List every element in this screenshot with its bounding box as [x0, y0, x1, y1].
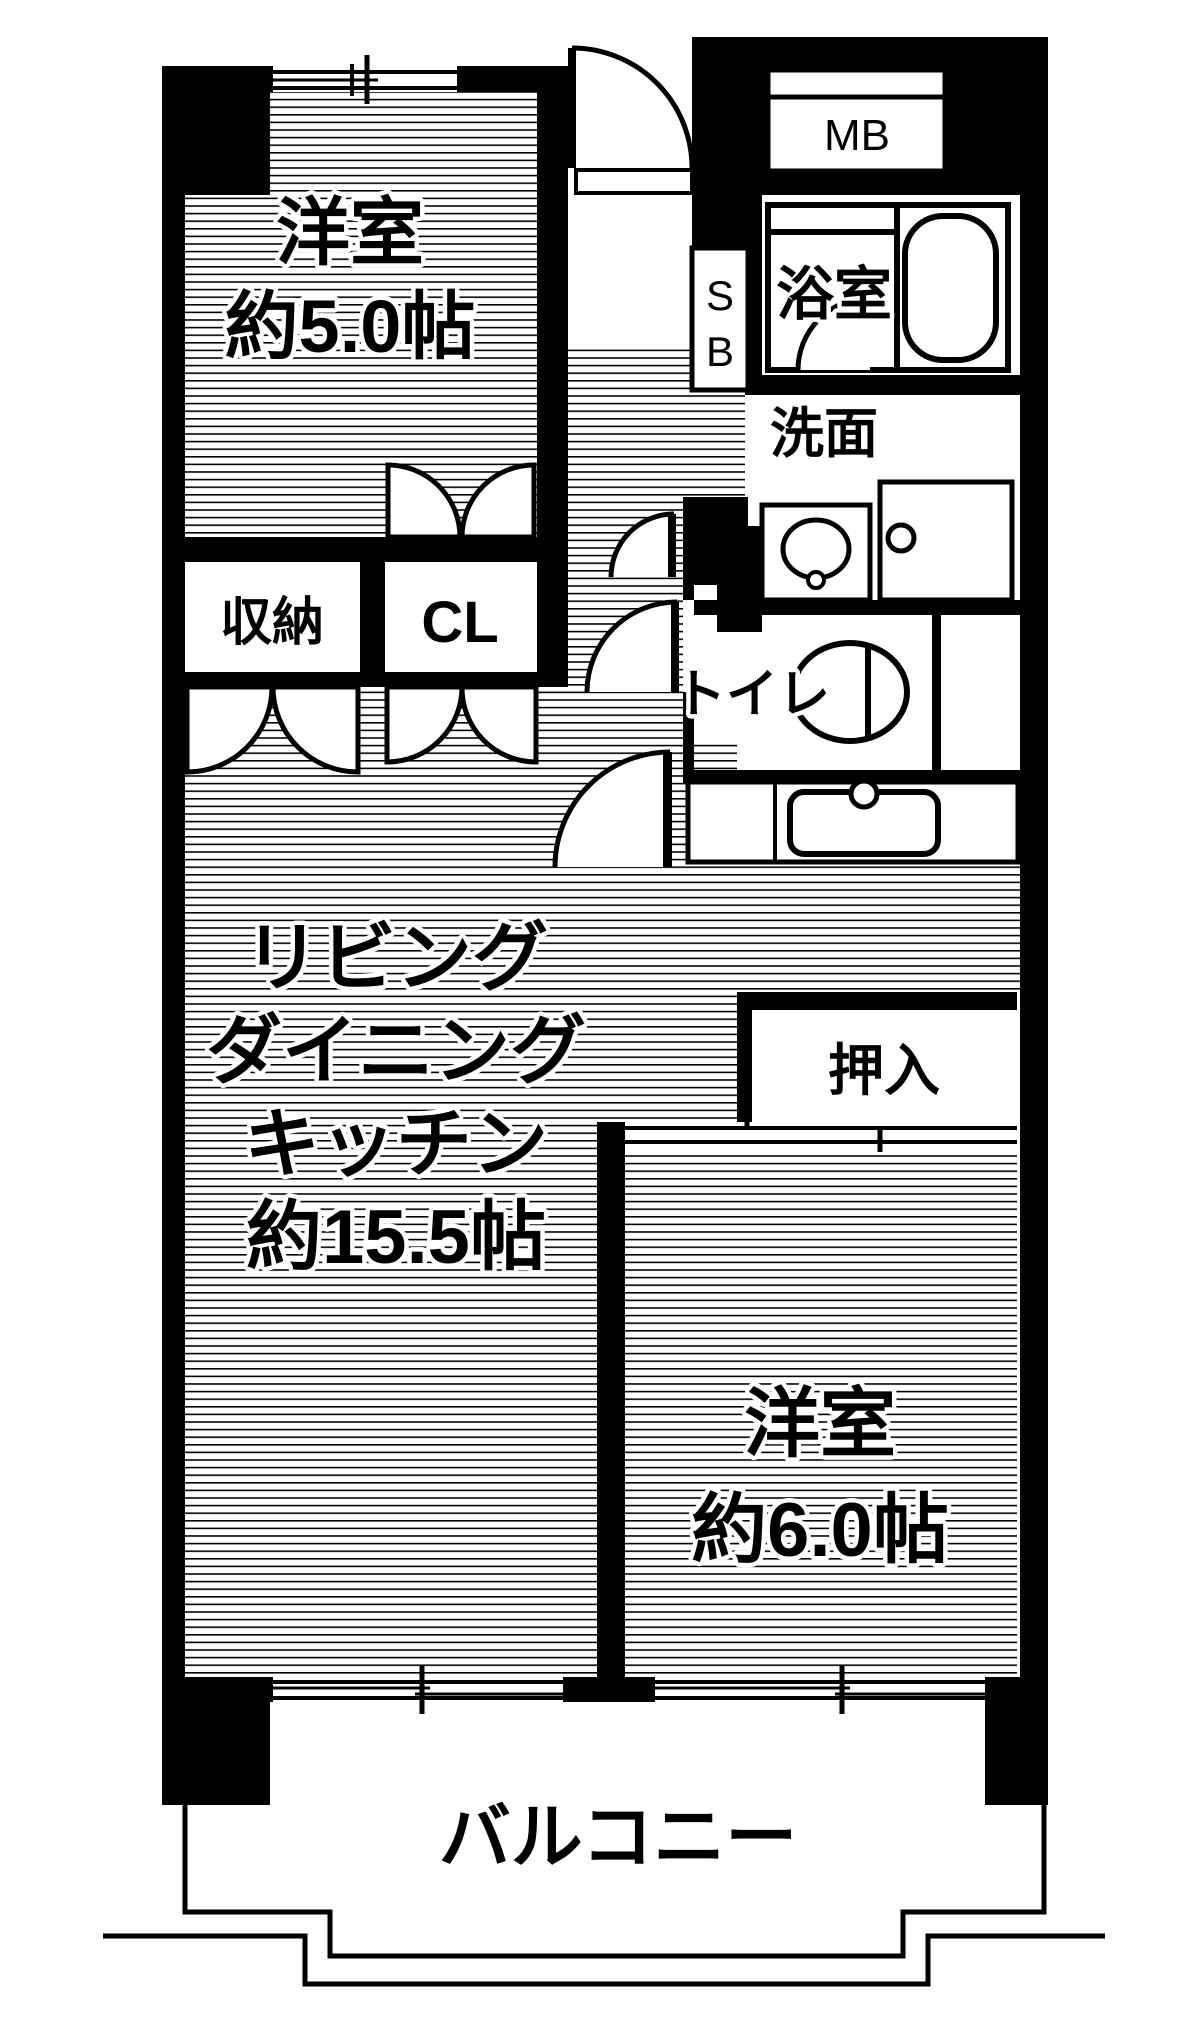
- wall-washroom-west: [717, 526, 762, 632]
- ldk-label-line3: キッチン: [244, 1102, 548, 1187]
- hallway-floor-mid: [568, 390, 745, 497]
- floor-plan: MB S B 浴室 洗面 トイレ 収納 CL 押入: [0, 0, 1200, 2036]
- storage-label: 収納: [220, 594, 324, 652]
- wall-top-left-b: [457, 66, 568, 92]
- western5-size: 約5.0帖: [225, 285, 476, 368]
- ldk-label-line4: 約15.5帖: [246, 1195, 546, 1280]
- closet-label: CL: [421, 590, 498, 655]
- ldk-floor-kitchen-south: [683, 862, 1020, 992]
- wall-top-right-strip: [692, 37, 1048, 70]
- western6-name: 洋室: [744, 1382, 896, 1467]
- wall-below-bath: [745, 375, 1020, 395]
- entrance-door-leaf: [568, 48, 576, 168]
- wall-left: [162, 66, 185, 1702]
- shoe-box-label-b: B: [706, 328, 734, 375]
- kitchen-faucet: [851, 781, 877, 807]
- bathroom-label: 浴室: [776, 262, 892, 327]
- balcony-label: バルコニー: [439, 1798, 798, 1878]
- toilet-label: トイレ: [674, 666, 830, 724]
- wall-below-mb: [768, 171, 945, 195]
- western6-size: 約6.0帖: [691, 1488, 949, 1573]
- meter-box-label: MB: [824, 111, 890, 160]
- wash-basin-drain: [808, 572, 824, 588]
- ldk-label-line2: ダイニング: [206, 1009, 586, 1094]
- western5-name: 洋室: [276, 191, 424, 274]
- wall-above-oshiire: [737, 992, 1017, 1010]
- ldk-floor-beside-oshiire: [683, 992, 737, 1122]
- washroom-door-leaf: [668, 514, 676, 577]
- wall-sliver-hall: [683, 585, 694, 600]
- wash-basin: [783, 520, 849, 578]
- oshiire-label: 押入: [828, 1039, 940, 1102]
- wall-toilet-divider: [932, 615, 941, 775]
- wall-storage-cl-divider: [360, 537, 385, 687]
- shoe-box-label-s: S: [706, 272, 734, 319]
- bathtub: [905, 216, 996, 360]
- wall-ldk-western6-divider: [597, 1122, 625, 1677]
- washroom-label: 洗面: [770, 404, 878, 464]
- washer-pan-drain: [888, 525, 914, 551]
- wall-right: [1020, 37, 1048, 1702]
- ldk-label-line1: リビング: [244, 916, 548, 1001]
- wall-oshiire-west: [737, 1010, 752, 1122]
- wall-western5-east: [537, 92, 568, 687]
- ldk-door-leaf: [663, 752, 672, 867]
- wall-bottom-right: [985, 1677, 1048, 1702]
- wall-bottom-left: [162, 1677, 273, 1702]
- hallway-floor-upper: [568, 345, 692, 390]
- wall-bottom-mid: [563, 1677, 655, 1702]
